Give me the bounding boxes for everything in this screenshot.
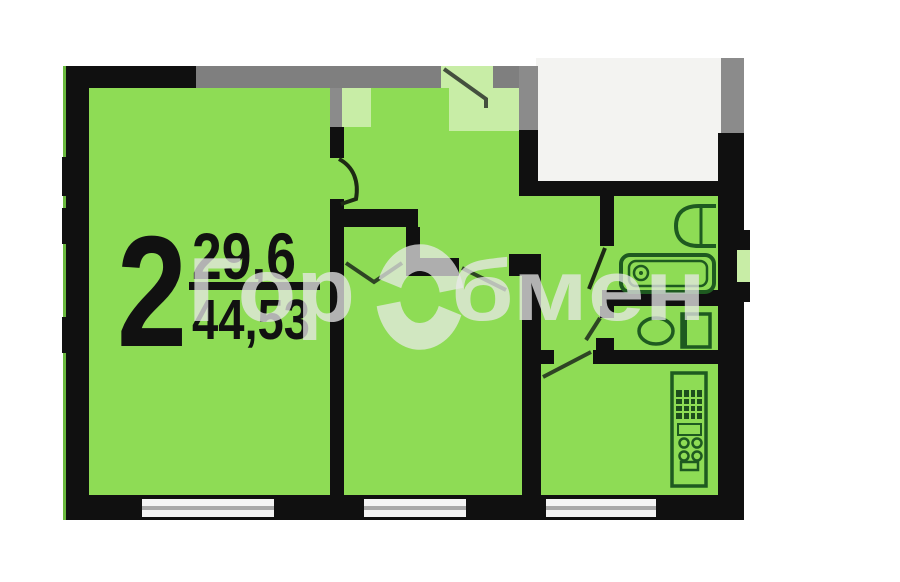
svg-text:бмен: бмен (451, 243, 706, 339)
svg-text:Гор: Гор (188, 239, 355, 341)
svg-text:2: 2 (117, 204, 187, 380)
